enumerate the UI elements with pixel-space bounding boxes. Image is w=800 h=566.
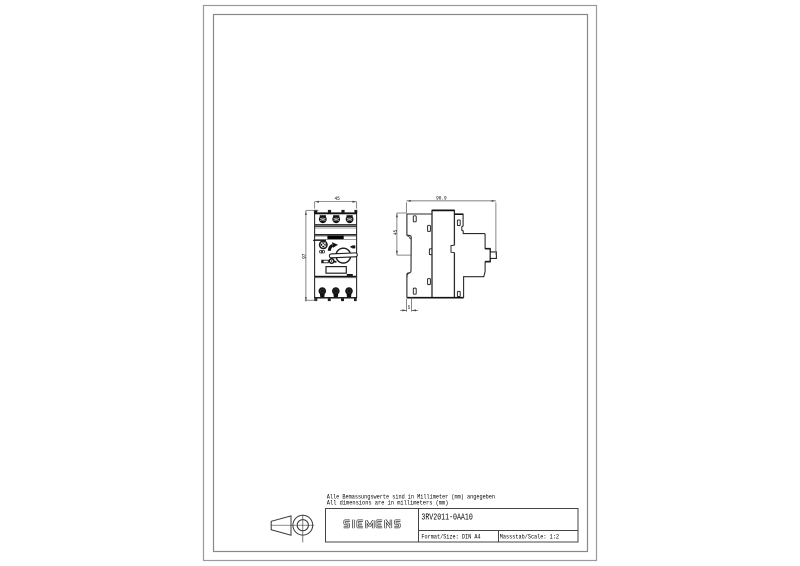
svg-text:97: 97 <box>301 253 308 258</box>
svg-text:Format/Size: DIN A4: Format/Size: DIN A4 <box>421 533 481 541</box>
svg-text:45: 45 <box>392 230 399 235</box>
svg-text:All dimensions are in millimet: All dimensions are in millimeters (mm) <box>327 499 449 507</box>
svg-text:3RV2011-0AA10: 3RV2011-0AA10 <box>421 513 473 523</box>
svg-text:5: 5 <box>408 305 411 312</box>
svg-text:96.9: 96.9 <box>436 195 447 202</box>
svg-text:45: 45 <box>334 195 339 202</box>
svg-text:Massstab/Scale: 1:2: Massstab/Scale: 1:2 <box>500 533 560 541</box>
